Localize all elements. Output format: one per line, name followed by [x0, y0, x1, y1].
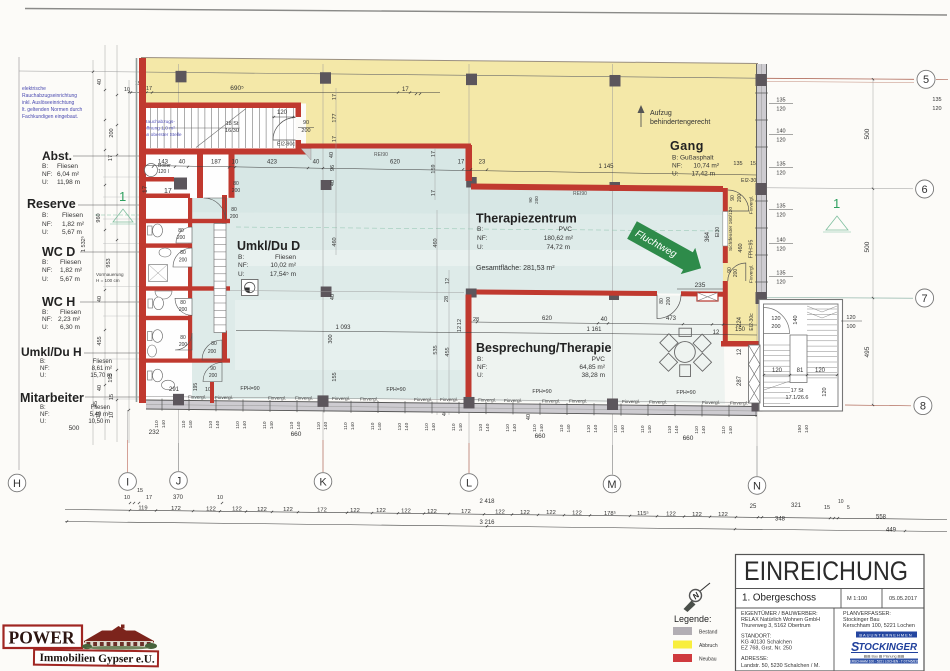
svg-text:Fixvergl.: Fixvergl.	[215, 395, 233, 401]
svg-text:KERSCHHAM 100 · 5221 LOCHEN ·: KERSCHHAM 100 · 5221 LOCHEN · T 07745/83…	[847, 659, 920, 663]
svg-text:140: 140	[620, 425, 626, 433]
svg-text:15: 15	[824, 505, 830, 511]
svg-text:J: J	[176, 475, 182, 487]
svg-text:110: 110	[289, 421, 295, 429]
svg-text:140: 140	[188, 420, 194, 428]
svg-text:660: 660	[535, 433, 546, 440]
svg-text:110: 110	[181, 420, 187, 428]
svg-text:11,98 m: 11,98 m	[57, 179, 80, 186]
svg-text:460: 460	[738, 243, 744, 252]
svg-text:122: 122	[520, 510, 530, 516]
svg-text:38,28 m: 38,28 m	[582, 372, 606, 379]
svg-text:Fliesen: Fliesen	[60, 309, 81, 316]
svg-text:PVC: PVC	[592, 356, 606, 363]
svg-text:12: 12	[445, 278, 451, 284]
svg-text:122: 122	[427, 509, 437, 515]
svg-text:EI30: EI30	[715, 227, 721, 238]
svg-text:Bestand: Bestand	[699, 630, 718, 636]
svg-text:187: 187	[211, 160, 222, 166]
svg-text:17: 17	[146, 495, 152, 501]
svg-text:177: 177	[332, 113, 338, 122]
svg-text:1 161: 1 161	[586, 327, 602, 333]
svg-text:620: 620	[390, 160, 401, 166]
svg-text:behindertengerecht: behindertengerecht	[650, 119, 710, 126]
svg-text:Umkl/Du D: Umkl/Du D	[237, 239, 300, 253]
svg-text:953: 953	[106, 258, 112, 267]
svg-text:500: 500	[69, 425, 80, 432]
svg-text:40: 40	[526, 414, 532, 420]
svg-text:172: 172	[461, 509, 471, 515]
svg-text:NF:: NF:	[42, 221, 53, 228]
svg-text:1: 1	[833, 196, 840, 211]
svg-text:05.05.2017: 05.05.2017	[889, 596, 917, 602]
svg-text:Fliesen: Fliesen	[91, 405, 110, 411]
svg-text:200: 200	[232, 188, 241, 194]
svg-text:B:: B:	[42, 212, 48, 219]
svg-text:120: 120	[815, 368, 826, 374]
svg-text:EZ 768, Grst. Nr. 250: EZ 768, Grst. Nr. 250	[741, 646, 792, 652]
svg-text:40: 40	[97, 385, 103, 391]
svg-text:120 l: 120 l	[158, 169, 169, 175]
svg-text:64,85 m²: 64,85 m²	[579, 364, 605, 371]
svg-text:473: 473	[666, 316, 677, 322]
svg-text:3 216: 3 216	[479, 520, 495, 526]
svg-text:10,50 m: 10,50 m	[88, 419, 110, 425]
svg-text:119: 119	[138, 506, 147, 512]
svg-text:I: I	[126, 476, 129, 488]
svg-text:EINREICHUNG: EINREICHUNG	[744, 556, 908, 586]
svg-text:Landstr. 50, 5230 Schalchen /: Landstr. 50, 5230 Schalchen / M.	[741, 663, 820, 669]
svg-text:620: 620	[542, 316, 553, 322]
svg-text:120: 120	[846, 315, 855, 321]
svg-text:8,61 m²: 8,61 m²	[92, 366, 112, 372]
svg-text:B:: B:	[42, 309, 48, 316]
svg-text:122: 122	[572, 510, 582, 516]
svg-text:5,67 m: 5,67 m	[62, 229, 82, 236]
svg-text:122: 122	[546, 510, 556, 516]
svg-text:10: 10	[124, 495, 130, 501]
svg-text:80: 80	[180, 300, 186, 306]
svg-text:Fliesen: Fliesen	[57, 163, 78, 170]
svg-text:U:: U:	[42, 229, 49, 236]
svg-text:140: 140	[431, 423, 437, 431]
svg-text:140: 140	[161, 420, 167, 428]
svg-text:Fixvergl.: Fixvergl.	[414, 397, 432, 403]
svg-text:120: 120	[776, 138, 785, 144]
svg-text:558: 558	[876, 515, 887, 521]
svg-text:FPH=95: FPH=95	[749, 240, 755, 259]
svg-text:15,70 m: 15,70 m	[90, 373, 112, 379]
svg-text:122: 122	[376, 508, 386, 514]
svg-text:110: 110	[397, 423, 403, 431]
svg-text:6,04 m²: 6,04 m²	[57, 171, 80, 178]
svg-text:M 1:100: M 1:100	[847, 596, 867, 602]
svg-text:172: 172	[317, 508, 327, 514]
svg-text:535: 535	[433, 345, 439, 354]
svg-text:135: 135	[776, 271, 785, 277]
svg-text:Rauchabzugs-: Rauchabzugs-	[144, 119, 175, 125]
svg-text:110: 110	[424, 423, 430, 431]
svg-text:122: 122	[495, 510, 505, 516]
svg-text:110: 110	[316, 422, 322, 430]
svg-text:B:: B:	[40, 359, 46, 365]
svg-text:NF:: NF:	[477, 235, 488, 242]
svg-text:140: 140	[296, 421, 302, 429]
svg-text:200: 200	[771, 324, 780, 330]
svg-text:40: 40	[97, 79, 103, 85]
svg-text:▤▤ Bau ▤ Planung ▤▤: ▤▤ Bau ▤ Planung ▤▤	[864, 655, 905, 659]
svg-text:Fixvergl.: Fixvergl.	[360, 396, 378, 402]
svg-text:EI2-90c: EI2-90c	[277, 142, 295, 148]
svg-text:1 532⁵: 1 532⁵	[80, 236, 87, 252]
svg-text:1,82 m²: 1,82 m²	[60, 267, 83, 274]
svg-text:200: 200	[208, 349, 217, 355]
svg-text:140: 140	[539, 424, 545, 432]
svg-text:10: 10	[838, 499, 844, 505]
svg-text:Fliesen: Fliesen	[275, 254, 296, 261]
svg-text:200: 200	[179, 307, 188, 313]
svg-text:90: 90	[303, 120, 309, 126]
svg-text:B: Gußasphalt: B: Gußasphalt	[672, 155, 714, 162]
svg-text:455: 455	[97, 336, 103, 345]
svg-text:140: 140	[215, 420, 221, 428]
svg-text:178⁵: 178⁵	[604, 510, 617, 517]
svg-text:690⁵: 690⁵	[230, 85, 244, 92]
svg-text:B:: B:	[477, 226, 483, 233]
svg-text:Sichtfenster 160/120: Sichtfenster 160/120	[728, 207, 734, 251]
svg-text:12: 12	[457, 319, 463, 325]
svg-text:NF:: NF:	[40, 366, 50, 372]
svg-text:200: 200	[301, 128, 310, 134]
svg-text:81: 81	[797, 368, 804, 374]
svg-text:25: 25	[750, 504, 757, 510]
svg-text:150: 150	[797, 425, 803, 433]
svg-text:110: 110	[559, 424, 565, 432]
svg-text:2,23 m²: 2,23 m²	[58, 316, 81, 323]
svg-text:12: 12	[457, 326, 463, 332]
svg-text:U:: U:	[42, 276, 49, 283]
svg-text:224: 224	[737, 316, 743, 327]
svg-text:460: 460	[433, 238, 439, 247]
svg-text:200: 200	[179, 258, 188, 264]
svg-text:Thurerweg 3, 5162 Obertrum: Thurerweg 3, 5162 Obertrum	[741, 623, 811, 629]
svg-text:110: 110	[451, 423, 457, 431]
svg-text:122: 122	[232, 507, 242, 513]
svg-text:110: 110	[262, 421, 268, 429]
svg-text:17: 17	[332, 136, 338, 142]
svg-text:1: 1	[119, 189, 126, 204]
svg-text:NF:: NF:	[477, 364, 488, 371]
svg-text:Therapiezentrum: Therapiezentrum	[476, 212, 577, 226]
svg-text:Fixvergl.: Fixvergl.	[569, 399, 587, 405]
svg-text:U:: U:	[672, 171, 679, 178]
svg-text:15: 15	[137, 488, 143, 494]
svg-text:Immobilien Gypser e.U.: Immobilien Gypser e.U.	[39, 652, 155, 666]
svg-text:140: 140	[377, 422, 383, 430]
svg-text:143: 143	[158, 160, 169, 166]
svg-text:Fixvergl.: Fixvergl.	[504, 398, 522, 404]
svg-text:U:: U:	[40, 373, 46, 379]
svg-text:80: 80	[211, 341, 217, 347]
svg-text:elektrische: elektrische	[22, 86, 46, 92]
svg-text:115⁵: 115⁵	[637, 510, 649, 517]
svg-text:Abbruch: Abbruch	[699, 643, 718, 649]
svg-text:80: 80	[659, 298, 665, 304]
svg-text:10,74 m²: 10,74 m²	[693, 163, 719, 170]
svg-text:122: 122	[401, 508, 411, 514]
svg-text:140: 140	[728, 426, 734, 434]
svg-text:Gesamtfläche: 281,53 m²: Gesamtfläche: 281,53 m²	[476, 265, 555, 272]
svg-text:155: 155	[332, 372, 338, 381]
svg-text:110: 110	[505, 424, 511, 432]
svg-text:140: 140	[566, 424, 572, 432]
svg-text:Neubau: Neubau	[699, 657, 717, 663]
svg-text:110: 110	[370, 422, 376, 430]
svg-text:U:: U:	[40, 419, 46, 425]
svg-text:110: 110	[721, 426, 727, 434]
svg-text:FPH=90: FPH=90	[532, 389, 551, 395]
svg-text:NF:: NF:	[42, 267, 53, 274]
svg-text:110: 110	[640, 425, 646, 433]
svg-text:500: 500	[864, 241, 871, 252]
svg-text:80: 80	[180, 335, 186, 341]
svg-text:U:: U:	[477, 244, 484, 251]
svg-text:40: 40	[330, 294, 336, 300]
svg-text:5,67 m: 5,67 m	[60, 276, 80, 283]
svg-text:5,49 m²: 5,49 m²	[90, 412, 110, 418]
svg-text:6: 6	[922, 184, 928, 196]
svg-text:Fliesen: Fliesen	[60, 259, 81, 266]
svg-text:Gang: Gang	[670, 139, 704, 153]
svg-text:200: 200	[179, 342, 188, 348]
svg-text:80: 80	[178, 228, 184, 234]
svg-text:10: 10	[232, 160, 239, 166]
svg-text:40: 40	[329, 152, 335, 158]
svg-text:M: M	[607, 479, 616, 491]
svg-text:7: 7	[922, 293, 928, 305]
svg-text:EIGENTÜMER / BAUWERBER:: EIGENTÜMER / BAUWERBER:	[741, 610, 818, 617]
svg-text:TOCKINGER: TOCKINGER	[859, 642, 919, 653]
svg-text:B:: B:	[238, 254, 244, 261]
svg-text:FPH=90: FPH=90	[240, 386, 259, 392]
svg-text:H = 100 cm: H = 100 cm	[96, 278, 120, 283]
svg-text:200: 200	[177, 235, 186, 241]
svg-text:200: 200	[109, 128, 115, 137]
svg-text:1,82 m²: 1,82 m²	[62, 221, 85, 228]
svg-text:Kerschham 100, 5221 Lochen: Kerschham 100, 5221 Lochen	[843, 623, 915, 629]
svg-text:Besprechung/Therapie: Besprechung/Therapie	[476, 341, 611, 355]
svg-text:8: 8	[920, 400, 926, 412]
svg-text:140: 140	[593, 424, 599, 432]
svg-text:Fixvergl.: Fixvergl.	[749, 196, 755, 214]
svg-text:140: 140	[793, 315, 799, 324]
svg-text:Umkl/Du H: Umkl/Du H	[21, 345, 82, 359]
svg-text:135: 135	[932, 97, 941, 103]
svg-text:12: 12	[713, 330, 720, 336]
svg-text:NF:: NF:	[238, 262, 249, 269]
svg-text:5: 5	[923, 74, 929, 86]
svg-text:Fixvergl.: Fixvergl.	[268, 395, 286, 401]
svg-text:80: 80	[231, 207, 237, 213]
svg-text:17: 17	[431, 151, 437, 157]
svg-text:Fixvergl.: Fixvergl.	[478, 398, 496, 404]
svg-text:15: 15	[750, 161, 756, 167]
svg-text:140: 140	[776, 129, 785, 135]
svg-text:5: 5	[847, 505, 850, 511]
svg-text:300: 300	[328, 334, 334, 343]
svg-text:Reserve: Reserve	[27, 197, 76, 211]
svg-text:17,54⁵ m: 17,54⁵ m	[270, 271, 296, 278]
svg-text:Abst.: Abst.	[42, 149, 72, 163]
svg-text:135: 135	[776, 162, 785, 168]
svg-text:120: 120	[776, 280, 785, 286]
svg-text:140: 140	[458, 423, 464, 431]
svg-text:U:: U:	[238, 271, 245, 278]
svg-text:200: 200	[209, 373, 218, 379]
svg-text:120: 120	[932, 106, 941, 112]
svg-text:H: H	[13, 478, 21, 490]
svg-text:Fliesen: Fliesen	[93, 359, 112, 365]
svg-text:120: 120	[772, 368, 783, 374]
svg-text:200: 200	[733, 269, 739, 278]
svg-text:140: 140	[701, 426, 707, 434]
svg-text:B:: B:	[477, 356, 483, 363]
svg-text:40: 40	[313, 160, 320, 166]
svg-text:122: 122	[692, 512, 702, 518]
svg-text:1 145: 1 145	[598, 164, 614, 170]
svg-text:120: 120	[776, 213, 785, 219]
svg-text:122: 122	[350, 508, 360, 514]
svg-text:Fixvergl.: Fixvergl.	[332, 396, 350, 402]
svg-text:135: 135	[776, 204, 785, 210]
svg-text:140: 140	[674, 425, 680, 433]
svg-text:U:: U:	[42, 324, 49, 331]
svg-text:120: 120	[776, 107, 785, 113]
svg-text:660: 660	[291, 431, 302, 438]
svg-text:an oberster Stelle: an oberster Stelle	[144, 132, 182, 138]
svg-text:Vormauerung: Vormauerung	[96, 272, 124, 277]
svg-text:10: 10	[217, 495, 223, 501]
svg-text:200: 200	[666, 297, 672, 306]
svg-text:40: 40	[601, 317, 608, 323]
svg-text:140: 140	[350, 422, 356, 430]
svg-text:17.1/26.6: 17.1/26.6	[786, 395, 809, 401]
svg-text:L: L	[466, 477, 472, 489]
svg-text:449: 449	[886, 528, 897, 534]
svg-text:370: 370	[173, 495, 184, 501]
svg-text:140: 140	[242, 421, 248, 429]
svg-text:17,42 m: 17,42 m	[692, 171, 716, 178]
svg-text:40: 40	[179, 160, 186, 166]
svg-text:110: 110	[208, 421, 214, 429]
svg-text:500: 500	[864, 128, 871, 139]
svg-text:110: 110	[613, 425, 619, 433]
svg-text:80: 80	[180, 250, 186, 256]
svg-text:110: 110	[235, 421, 241, 429]
svg-text:135: 135	[776, 98, 785, 104]
svg-text:140: 140	[269, 421, 275, 429]
svg-text:WC D: WC D	[42, 245, 75, 259]
svg-text:495: 495	[864, 346, 871, 357]
svg-text:Legende:: Legende:	[674, 614, 712, 624]
svg-text:122: 122	[206, 506, 216, 512]
svg-text:287: 287	[737, 375, 743, 386]
svg-text:321: 321	[791, 503, 802, 509]
svg-text:17: 17	[142, 185, 149, 193]
svg-text:140: 140	[776, 238, 785, 244]
svg-text:Fixvergl.: Fixvergl.	[622, 399, 640, 405]
svg-text:REI90: REI90	[374, 152, 388, 158]
svg-text:200: 200	[230, 214, 239, 220]
svg-text:Fixvergl.: Fixvergl.	[188, 395, 206, 401]
svg-text:FPH=90: FPH=90	[386, 387, 405, 393]
svg-text:lt. geltenden Normen durch: lt. geltenden Normen durch	[22, 107, 83, 113]
svg-text:90: 90	[730, 195, 736, 201]
svg-text:364: 364	[705, 231, 711, 242]
svg-text:Fixvergl.: Fixvergl.	[440, 397, 458, 403]
svg-text:140: 140	[485, 423, 491, 431]
svg-text:Fixvergl.: Fixvergl.	[649, 399, 667, 405]
svg-text:K: K	[319, 476, 327, 488]
svg-text:120: 120	[771, 316, 780, 322]
svg-text:80: 80	[233, 181, 239, 187]
svg-text:120: 120	[277, 110, 288, 116]
svg-text:NF:: NF:	[42, 171, 53, 178]
svg-text:140: 140	[512, 424, 518, 432]
svg-text:110: 110	[667, 425, 673, 433]
svg-text:195: 195	[193, 383, 199, 392]
svg-text:172: 172	[171, 506, 181, 512]
svg-text:REI90: REI90	[573, 191, 587, 197]
svg-text:10,02 m²: 10,02 m²	[270, 262, 296, 269]
svg-text:Mitarbeiter: Mitarbeiter	[20, 391, 84, 405]
svg-text:17: 17	[402, 87, 409, 93]
svg-text:135: 135	[733, 161, 742, 167]
svg-text:Fixvergl.: Fixvergl.	[702, 400, 720, 406]
svg-text:122: 122	[718, 512, 728, 518]
svg-text:17: 17	[146, 86, 152, 92]
svg-text:U:: U:	[477, 372, 484, 379]
svg-text:110: 110	[694, 426, 700, 434]
svg-text:110: 110	[343, 422, 349, 430]
svg-text:12: 12	[737, 348, 743, 355]
svg-text:N: N	[753, 480, 761, 492]
svg-text:B:: B:	[42, 163, 48, 170]
svg-text:110: 110	[586, 425, 592, 433]
svg-text:ADRESSE:: ADRESSE:	[741, 656, 768, 662]
svg-text:EI2-30c: EI2-30c	[749, 313, 755, 331]
svg-text:159: 159	[431, 164, 437, 173]
svg-text:232: 232	[149, 429, 160, 436]
svg-text:120: 120	[776, 171, 785, 177]
svg-text:122: 122	[257, 507, 267, 513]
svg-text:1. Obergeschoss: 1. Obergeschoss	[742, 593, 816, 604]
svg-text:1 093: 1 093	[335, 325, 351, 331]
svg-text:inkl. Auslöseeinrichtung: inkl. Auslöseeinrichtung	[22, 100, 74, 106]
svg-text:122: 122	[283, 507, 293, 513]
svg-text:90: 90	[528, 197, 533, 203]
svg-text:23: 23	[479, 160, 486, 166]
svg-text:40: 40	[97, 296, 103, 302]
svg-text:Fixvergl.: Fixvergl.	[730, 400, 748, 406]
svg-text:235: 235	[695, 282, 706, 289]
svg-text:18 St: 18 St	[226, 121, 239, 127]
svg-text:200: 200	[737, 194, 743, 203]
svg-text:U:: U:	[42, 179, 49, 186]
svg-text:Fixvergl.: Fixvergl.	[295, 396, 313, 402]
svg-text:NF:: NF:	[672, 163, 683, 170]
svg-text:Aufzug: Aufzug	[650, 110, 672, 117]
